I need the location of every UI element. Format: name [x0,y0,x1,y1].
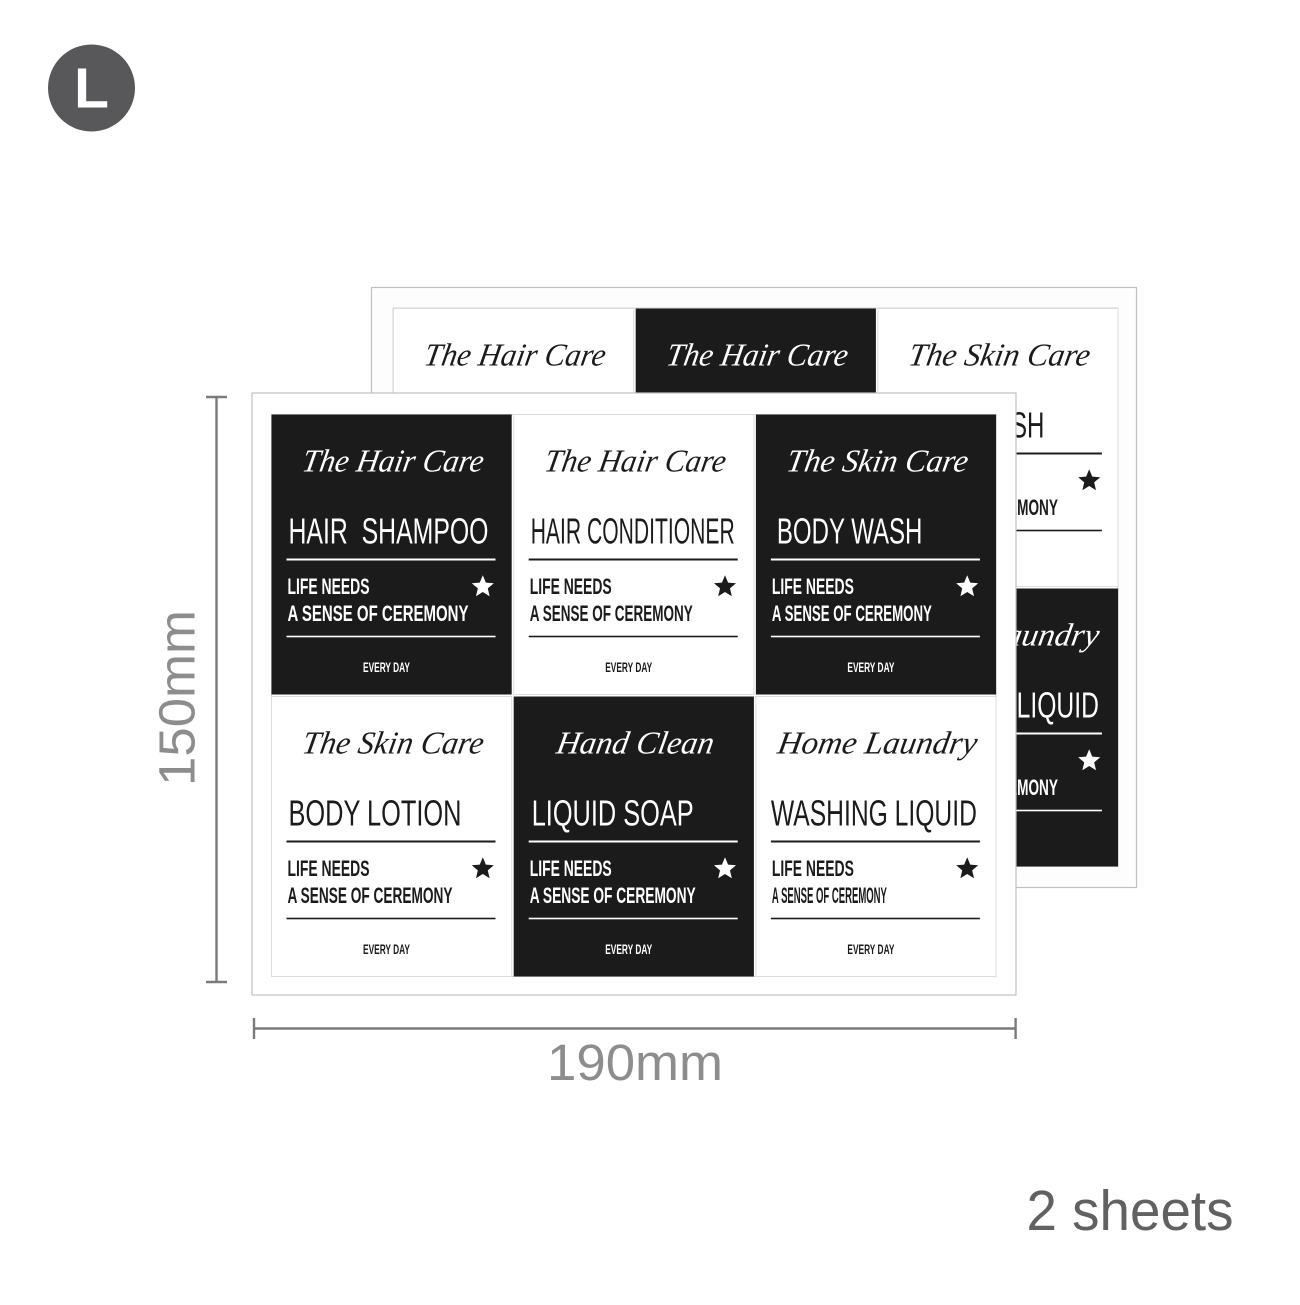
svg-text:A SENSE OF CEREMONY: A SENSE OF CEREMONY [288,601,469,626]
svg-text:The Hair Care: The Hair Care [422,337,609,373]
svg-text:The Hair Care: The Hair Care [664,337,851,373]
svg-text:A SENSE OF CEREMONY: A SENSE OF CEREMONY [772,601,932,626]
svg-text:EVERY DAY: EVERY DAY [847,660,894,675]
svg-text:EVERY DAY: EVERY DAY [605,942,652,957]
svg-text:2 sheets: 2 sheets [1027,1179,1234,1243]
svg-text:EVERY DAY: EVERY DAY [605,660,652,675]
svg-text:BODY WASH: BODY WASH [777,511,923,552]
svg-text:LIFE NEEDS: LIFE NEEDS [530,574,612,599]
svg-text:The Hair Care: The Hair Care [300,443,487,479]
svg-text:Home Laundry: Home Laundry [774,725,981,761]
svg-text:150mm: 150mm [149,610,206,786]
svg-text:The Hair Care: The Hair Care [542,443,729,479]
svg-text:A SENSE OF CEREMONY: A SENSE OF CEREMONY [772,883,887,908]
svg-text:LIFE NEEDS: LIFE NEEDS [288,574,370,599]
svg-text:LIQUID SOAP: LIQUID SOAP [532,793,694,834]
svg-text:LIFE NEEDS: LIFE NEEDS [772,574,854,599]
svg-text:HAIR CONDITIONER: HAIR CONDITIONER [531,511,735,552]
svg-text:WASHING LIQUID: WASHING LIQUID [771,793,977,834]
svg-text:The Skin Care: The Skin Care [300,725,487,761]
svg-text:A SENSE OF CEREMONY: A SENSE OF CEREMONY [288,883,453,908]
svg-text:EVERY DAY: EVERY DAY [847,942,894,957]
svg-text:The Skin Care: The Skin Care [784,443,971,479]
svg-text:Hand Clean: Hand Clean [553,725,717,761]
svg-text:LIFE NEEDS: LIFE NEEDS [288,856,370,881]
svg-text:LIFE NEEDS: LIFE NEEDS [530,856,612,881]
svg-text:190mm: 190mm [547,1034,723,1091]
svg-text:EVERY DAY: EVERY DAY [363,660,410,675]
svg-text:A SENSE OF CEREMONY: A SENSE OF CEREMONY [530,883,696,908]
svg-text:A SENSE OF CEREMONY: A SENSE OF CEREMONY [530,601,693,626]
svg-text:The Skin Care: The Skin Care [906,337,1093,373]
svg-text:LIFE NEEDS: LIFE NEEDS [772,856,854,881]
svg-text:BODY LOTION: BODY LOTION [289,793,462,834]
svg-text:L: L [74,57,109,121]
svg-text:EVERY DAY: EVERY DAY [363,942,410,957]
svg-text:HAIR SHAMPOO: HAIR SHAMPOO [289,511,489,552]
